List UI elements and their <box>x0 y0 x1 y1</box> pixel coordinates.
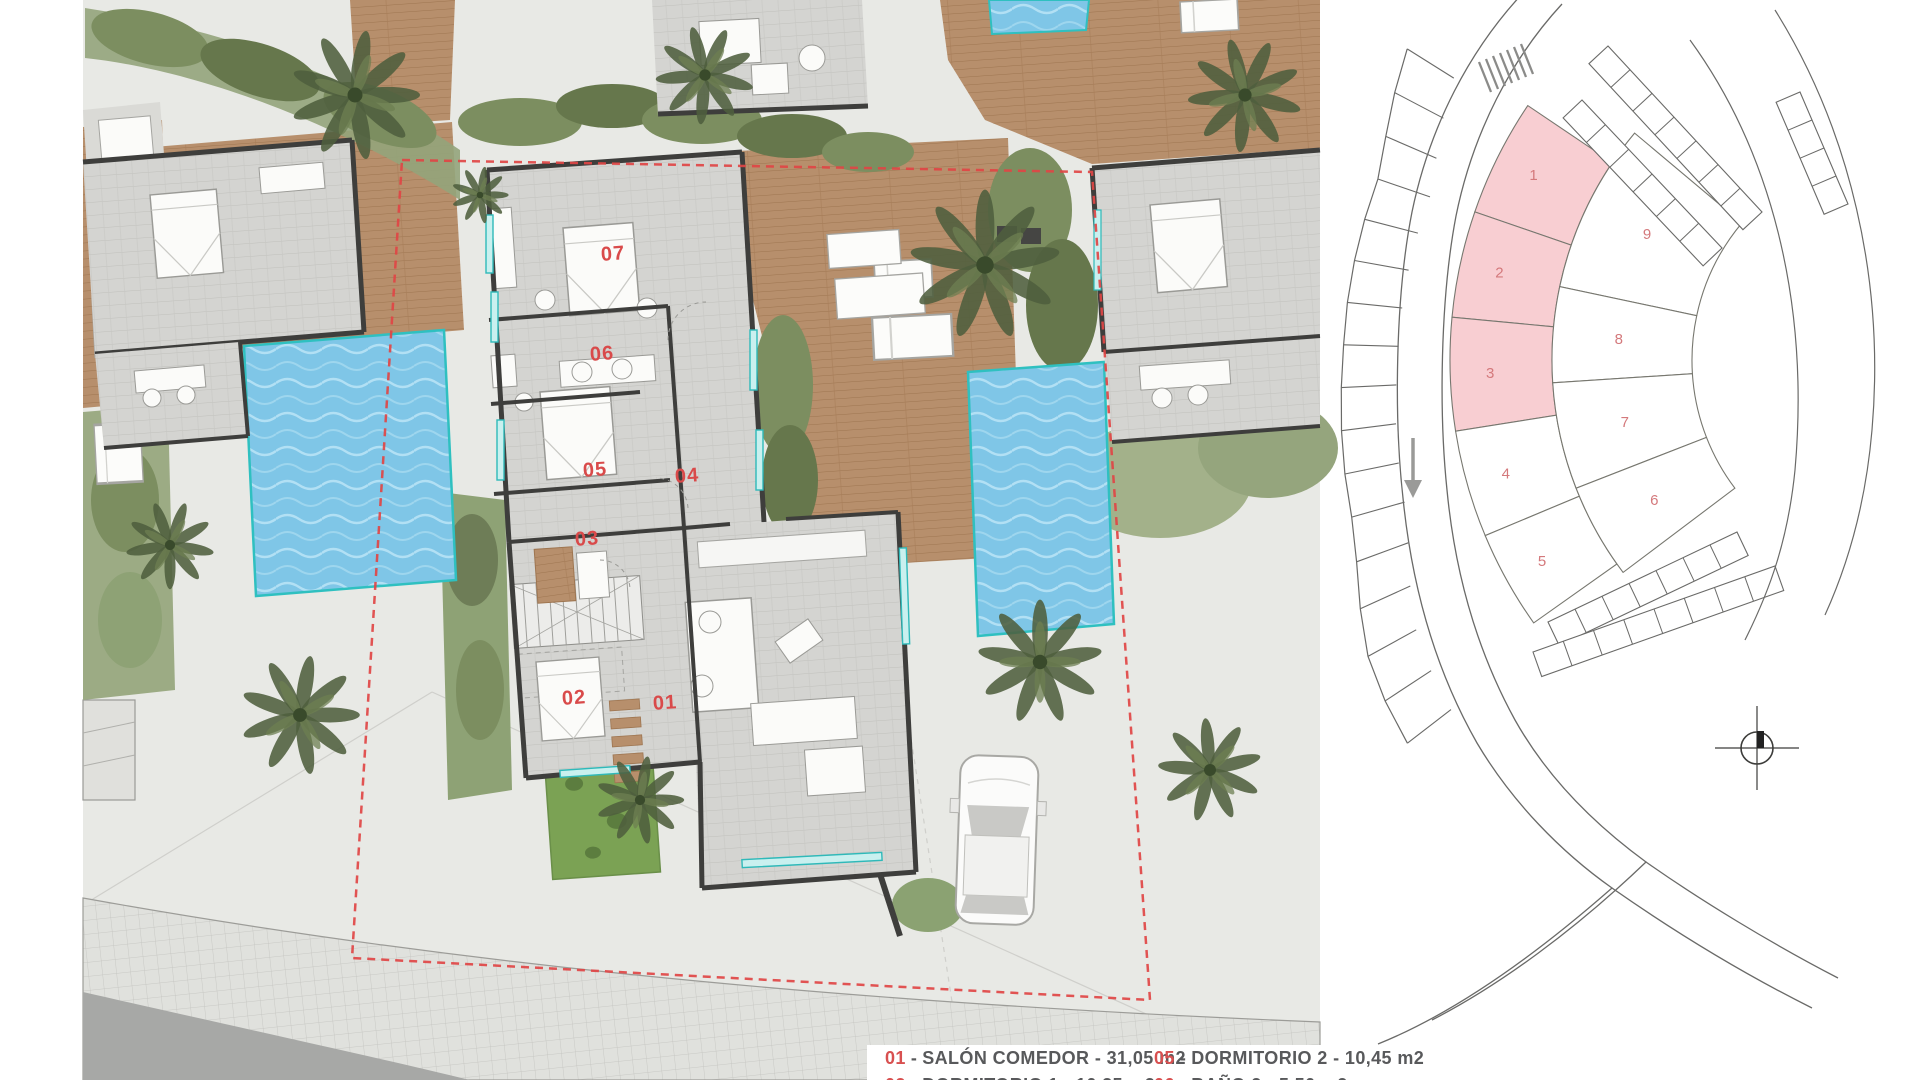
legend-item: 01-SALÓN COMEDOR - 31,05 m2 <box>885 1045 1186 1072</box>
legend-item: 02-DORMITORIO 1 - 10,35 m2 <box>885 1072 1186 1080</box>
road-direction-arrow-icon <box>1404 438 1422 498</box>
legend-item-label: BAÑO 2 - 5,50 m2 <box>1191 1075 1347 1080</box>
room-label-03: 03 <box>574 527 600 551</box>
legend-separator: - <box>1175 1048 1191 1068</box>
room-label-07: 07 <box>600 242 626 266</box>
keyplan-plot-number-5: 5 <box>1538 553 1546 570</box>
legend-item-label: SALÓN COMEDOR - 31,05 m2 <box>922 1048 1186 1068</box>
keyplan-plot-number-8: 8 <box>1615 331 1623 348</box>
site-plan: 01 02 03 04 05 06 07 <box>83 0 1338 1080</box>
page: 01 02 03 04 05 06 07 1 <box>0 0 1920 1080</box>
legend-item-label: DORMITORIO 2 - 10,45 m2 <box>1191 1048 1424 1068</box>
northeast-neighbor-villa <box>1092 150 1320 442</box>
southwest-structure <box>83 700 135 800</box>
keyplan-inner-plot-3 <box>1450 317 1556 431</box>
north-pool-fragment <box>989 0 1089 34</box>
plan-canvas: 01 02 03 04 05 06 07 1 <box>0 0 1920 1080</box>
legend-separator: - <box>1175 1075 1191 1080</box>
key-plan: 123459876 <box>1341 0 1874 1044</box>
room-label-04: 04 <box>674 464 700 488</box>
keyplan-plots: 123459876 <box>1450 106 1742 623</box>
room-label-01: 01 <box>652 691 678 715</box>
keyplan-plot-number-1: 1 <box>1529 167 1537 184</box>
north-indicator-icon <box>1715 706 1799 790</box>
crossing-hatch-icon <box>1479 44 1533 92</box>
legend-item-number: 02 <box>885 1075 906 1080</box>
room-label-02: 02 <box>561 686 587 710</box>
legend-item-number: 01 <box>885 1048 906 1068</box>
legend-separator: - <box>906 1075 922 1080</box>
legend: 01-SALÓN COMEDOR - 31,05 m2 02-DORMITORI… <box>867 1045 1467 1080</box>
legend-item: 06-BAÑO 2 - 5,50 m2 <box>1154 1072 1424 1080</box>
keyplan-plot-number-4: 4 <box>1502 465 1510 482</box>
east-pool <box>968 362 1114 636</box>
legend-column-2: 05-DORMITORIO 2 - 10,45 m2 06-BAÑO 2 - 5… <box>1154 1045 1424 1080</box>
room-label-06: 06 <box>589 342 615 366</box>
room-label-05: 05 <box>582 458 608 482</box>
legend-item-number: 05 <box>1154 1048 1175 1068</box>
keyplan-plot-number-3: 3 <box>1486 365 1494 382</box>
west-pool <box>244 330 456 596</box>
sofa <box>751 696 858 745</box>
car <box>946 754 1048 925</box>
legend-column-1: 01-SALÓN COMEDOR - 31,05 m2 02-DORMITORI… <box>885 1045 1186 1080</box>
legend-item: 05-DORMITORIO 2 - 10,45 m2 <box>1154 1045 1424 1072</box>
legend-item-number: 06 <box>1154 1075 1175 1080</box>
keyplan-plot-number-9: 9 <box>1643 226 1651 243</box>
legend-item-label: DORMITORIO 1 - 10,35 m2 <box>922 1075 1155 1080</box>
keyplan-plot-number-7: 7 <box>1621 414 1629 431</box>
legend-separator: - <box>906 1048 922 1068</box>
keyplan-plot-number-6: 6 <box>1650 492 1658 509</box>
keyplan-plot-number-2: 2 <box>1495 264 1503 281</box>
